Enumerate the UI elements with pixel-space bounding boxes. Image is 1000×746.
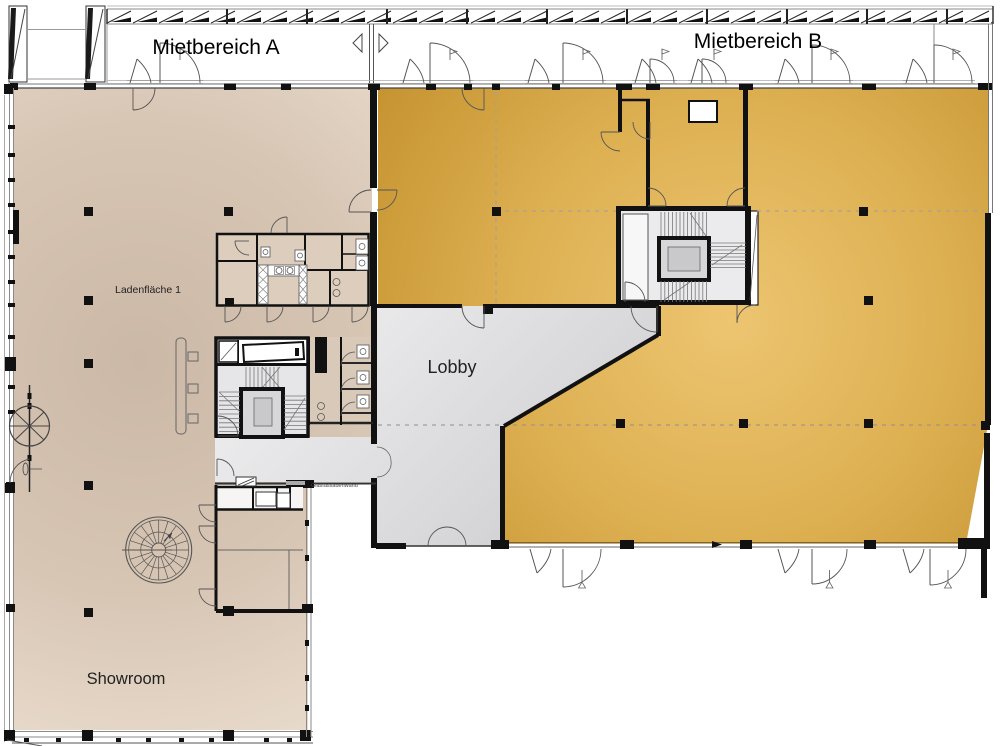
svg-text:Showroom: Showroom (87, 670, 166, 688)
svg-text:Lobby: Lobby (427, 357, 476, 377)
svg-text:Mietbereich A: Mietbereich A (152, 36, 279, 59)
svg-text:Ladenfläche 1: Ladenfläche 1 (115, 284, 181, 296)
svg-text:Mietbereich B: Mietbereich B (694, 30, 822, 53)
svg-text:Glasfassadenwand: Glasfassadenwand (311, 483, 358, 489)
